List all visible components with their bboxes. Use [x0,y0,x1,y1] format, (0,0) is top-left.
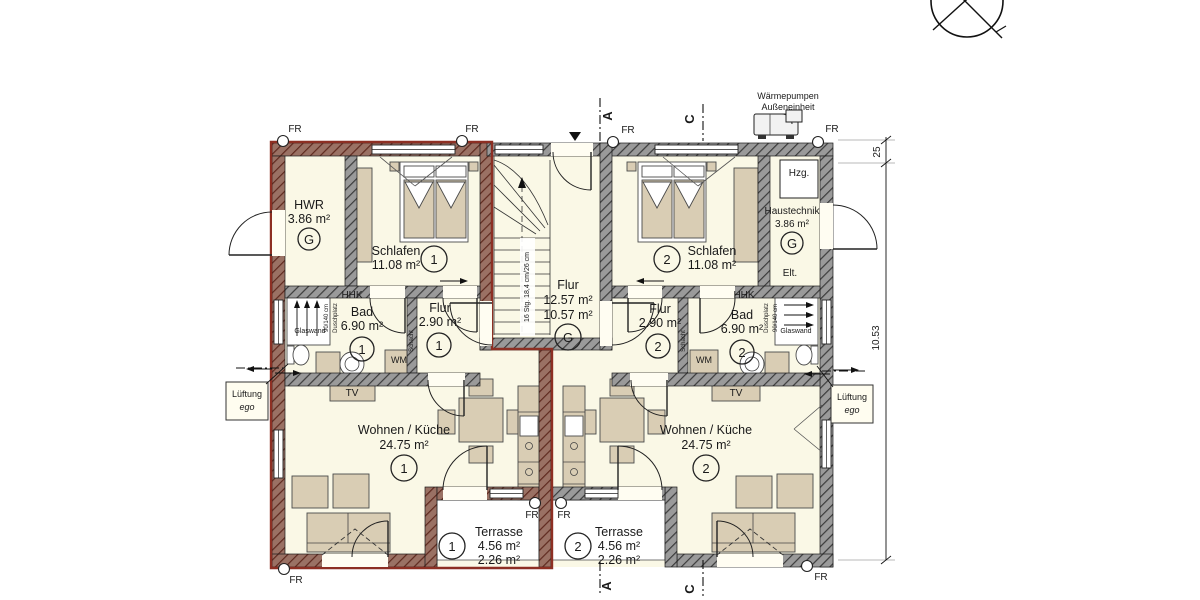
entrance-arrow [569,132,581,141]
room-area-flur1: 2.90 m² [419,315,461,329]
fr-circle [278,136,289,147]
label-wm: WM [696,355,712,365]
wardrobe [734,168,758,262]
room-name-bad1: Bad [351,305,373,319]
fr-label: FR [825,124,838,135]
north-arrow-compass [931,0,1006,38]
label-glaswand: Glaswand [294,328,325,335]
dim-wall-thickness: 25 [872,146,883,158]
room-name-hwr: HWR [294,198,324,212]
room-name-schlafen1: Schlafen [372,244,421,258]
bath-cabinet [765,352,789,374]
fr-label: FR [465,124,478,135]
section-a-top: A [600,111,615,121]
label-tv: TV [346,388,359,399]
dimension-line: 25 10.53 [838,136,895,564]
badge-wohnen2: 2 [702,461,709,476]
armchair [333,474,369,508]
room-area-schlafen2: 11.08 m² [688,258,736,272]
room-name-haustechnik: Haustechnik [764,206,820,217]
fr-label: FR [289,575,302,586]
room-name-terrasse2: Terrasse [595,525,643,539]
label-duschplatz-size: 90/140 cm [773,304,779,332]
room-area-bad2: 6.90 m² [721,322,763,336]
label-glaswand: Glaswand [780,328,811,335]
room-name-wohnen1: Wohnen / Küche [358,423,450,437]
room-area1-flur-g: 12.57 m² [543,293,592,307]
section-a-bottom: A [599,581,614,591]
room-name-wohnen2: Wohnen / Küche [660,423,752,437]
label-hhk: HHK [341,290,362,301]
room-area-hwr: 3.86 m² [288,212,330,226]
armchair [292,476,328,508]
label-hhk: HHK [733,290,754,301]
badge-wohnen1: 1 [400,461,407,476]
room-area-bad1: 6.90 m² [341,319,383,333]
room-name-flur1: Flur [429,301,451,315]
fr-circle [802,561,813,572]
armchair [777,474,813,508]
fr-circle [279,564,290,575]
label-duschplatz: Duschplatz [764,303,770,333]
room-name-schlafen2: Schlafen [688,244,737,258]
room-name-bad2: Bad [731,308,753,322]
kitchen-counter [563,386,585,500]
badge-schlafen2: 2 [663,252,670,267]
floorplan-drawing: 16 Stg. 18,4 cm/26 cm HWR 3.86 m² G Schl… [0,0,1200,600]
heat-pump-outdoor-unit: Wärmepumpen Außeneinheit [754,91,819,139]
fr-circle [556,498,567,509]
heatpump-label-1: Wärmepumpen [757,91,819,101]
label-duschplatz-size: 90/140 cm [324,304,330,332]
badge-terrasse2: 2 [574,539,581,554]
double-bed [627,162,716,242]
fr-circle [457,136,468,147]
label-schacht: Schacht [681,330,687,352]
wc-toilet [287,345,309,365]
badge-hwr: G [304,232,314,247]
badge-haustechnik: G [787,236,797,251]
badge-schlafen1: 1 [430,252,437,267]
room-area1-terrasse1: 4.56 m² [478,539,520,553]
sofa [712,513,795,552]
label-schacht: Schacht [409,330,415,352]
double-bed [390,162,478,242]
wc-toilet [796,345,818,365]
fr-circle [608,137,619,148]
room-area2-terrasse2: 2.26 m² [598,553,640,567]
bath-cabinet [316,352,340,374]
room-name-terrasse1: Terrasse [475,525,523,539]
badge-flur1: 1 [435,338,442,353]
label-duschplatz: Duschplatz [333,303,339,333]
room-area2-flur-g: 10.57 m² [543,308,592,322]
shower [775,293,818,345]
section-c-top: C [682,114,697,124]
lueftung-label: Lüftung [232,389,262,399]
label-elt: Elt. [783,268,797,279]
armchair [736,476,772,508]
sofa [307,513,390,552]
room-area-wohnen2: 24.75 m² [681,438,730,452]
badge-flur-g: G [563,330,573,345]
fr-label: FR [525,510,538,521]
room-name-flur2: Flur [649,302,671,316]
badge-bad2: 2 [738,345,745,360]
lueftung-label: Lüftung [837,392,867,402]
fr-label: FR [557,510,570,521]
lueftung-brand: ego [844,405,859,415]
room-area1-terrasse2: 4.56 m² [598,539,640,553]
label-tv: TV [730,388,743,399]
lueftung-brand: ego [239,402,254,412]
room-name-flur-g: Flur [557,278,579,292]
room-area-haustechnik: 3.86 m² [775,219,810,230]
room-area-wohnen1: 24.75 m² [379,438,428,452]
fr-label: FR [814,572,827,583]
fr-circle [813,137,824,148]
room-area-flur2: 2.90 m² [639,316,681,330]
badge-flur2: 2 [654,339,661,354]
floorplan-page: 16 Stg. 18,4 cm/26 cm HWR 3.86 m² G Schl… [0,0,1200,600]
fr-circle [530,498,541,509]
hzg-box [780,160,818,198]
section-c-bottom: C [682,584,697,594]
badge-terrasse1: 1 [448,539,455,554]
stair-note: 16 Stg. 18,4 cm/26 cm [524,252,531,322]
room-area2-terrasse1: 2.26 m² [478,553,520,567]
label-hzg: Hzg. [789,168,810,179]
kitchen-counter [518,386,540,500]
badge-bad1: 1 [358,342,365,357]
dim-building-depth: 10.53 [871,325,882,350]
fr-label: FR [621,125,634,136]
fr-label: FR [288,124,301,135]
room-area-schlafen1: 11.08 m² [372,258,420,272]
label-wm: WM [391,355,407,365]
